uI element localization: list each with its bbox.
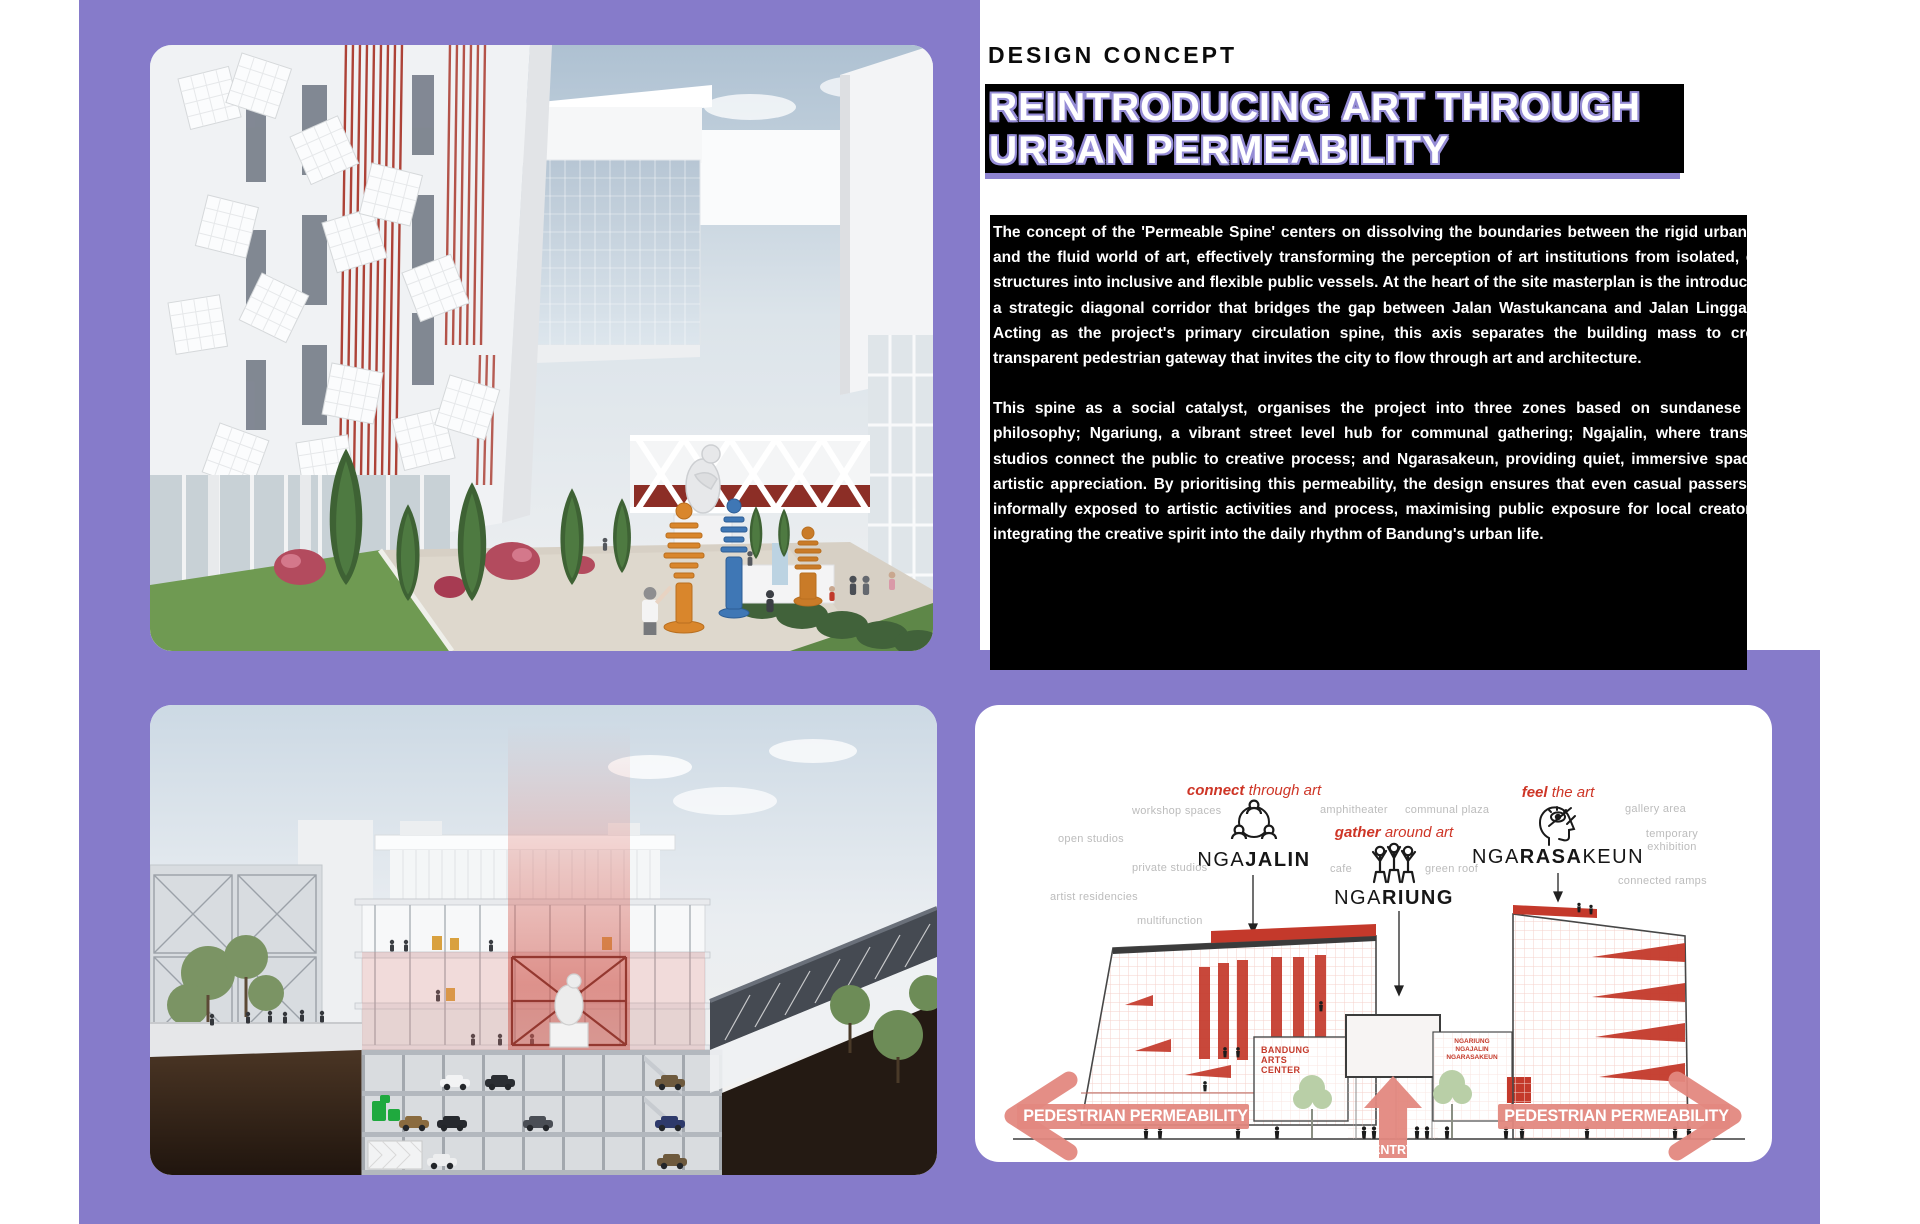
building-label-bandung-arts-center: BANDUNG ARTS CENTER [1261,1045,1310,1075]
tagline-feel-bold: feel [1522,784,1548,801]
label-open-studios: open studios [1058,833,1124,845]
zone-ngajalin-bold: JALIN [1245,849,1310,871]
section-render-art [150,705,937,1175]
title-underline [985,173,1680,179]
zone-ngariung-bold: RIUNG [1382,887,1454,909]
people-network-icon [1230,798,1278,844]
concept-paragraph-2: This spine as a social catalyst, organis… [993,396,1747,547]
label-connected-ramps: connected ramps [1618,875,1707,887]
tagline-gather: gather around art [1335,824,1453,841]
page-title-line2: URBAN PERMEABILITY [989,129,1684,172]
zone-ngarasakeun-bold: RASA [1520,846,1583,868]
concept-description: The concept of the 'Permeable Spine' cen… [990,215,1747,670]
zone-ngarasakeun-pre: NGA [1472,846,1520,868]
label-workshop-spaces: workshop spaces [1132,805,1222,817]
label-communal-plaza: communal plaza [1405,804,1489,816]
label-gallery-area: gallery area [1625,803,1686,815]
label-green-roof: green roof [1425,863,1478,875]
pedestrian-permeability-left-label: PEDESTRIAN PERMEABILITY [1023,1107,1243,1126]
tagline-connect-bold: connect [1187,782,1245,799]
pedestrian-permeability-right-label: PEDESTRIAN PERMEABILITY [1504,1107,1724,1126]
label-amphitheater: amphitheater [1320,804,1388,816]
label-cafe: cafe [1330,863,1352,875]
zone-name-ngajalin: NGAJALIN [1197,849,1310,872]
elevation-diagram-art [975,705,1772,1162]
tagline-gather-bold: gather [1335,824,1381,841]
tagline-gather-rest: around art [1381,824,1454,841]
zone-name-ngariung: NGARIUNG [1334,887,1454,910]
building-label-zones: NGARIUNG NGAJALIN NGARASAKEUN [1438,1038,1506,1062]
section-kicker: DESIGN CONCEPT [988,42,1237,69]
zone-name-ngarasakeun: NGARASAKEUN [1472,846,1644,869]
section-render-image [150,705,937,1175]
label-temporary-exhibition: temporary exhibition [1635,828,1709,854]
label-artist-residencies: artist residencies [1050,891,1138,903]
concept-diagram-card: connect through art gather around art fe… [975,705,1772,1162]
label-multifunction: multifunction [1137,915,1203,927]
zone-ngariung-pre: NGA [1334,887,1382,909]
entry-arrow-label: ENTRY [1369,1143,1417,1157]
tagline-connect: connect through art [1187,782,1321,799]
page-title-line1: REINTRODUCING ART THROUGH [989,86,1684,129]
people-group-icon [1368,841,1420,885]
tagline-feel: feel the art [1522,784,1595,801]
courtyard-render-art [150,45,933,651]
tagline-feel-rest: the art [1548,784,1595,801]
courtyard-render-image [150,45,933,651]
poster-canvas: DESIGN CONCEPT REINTRODUCING ART THROUGH… [0,0,1920,1224]
tagline-connect-rest: through art [1244,782,1321,799]
label-private-studios: private studios [1132,862,1207,874]
page-title: REINTRODUCING ART THROUGH URBAN PERMEABI… [985,84,1684,173]
head-eye-icon [1537,800,1579,846]
concept-paragraph-1: The concept of the 'Permeable Spine' cen… [993,220,1747,371]
